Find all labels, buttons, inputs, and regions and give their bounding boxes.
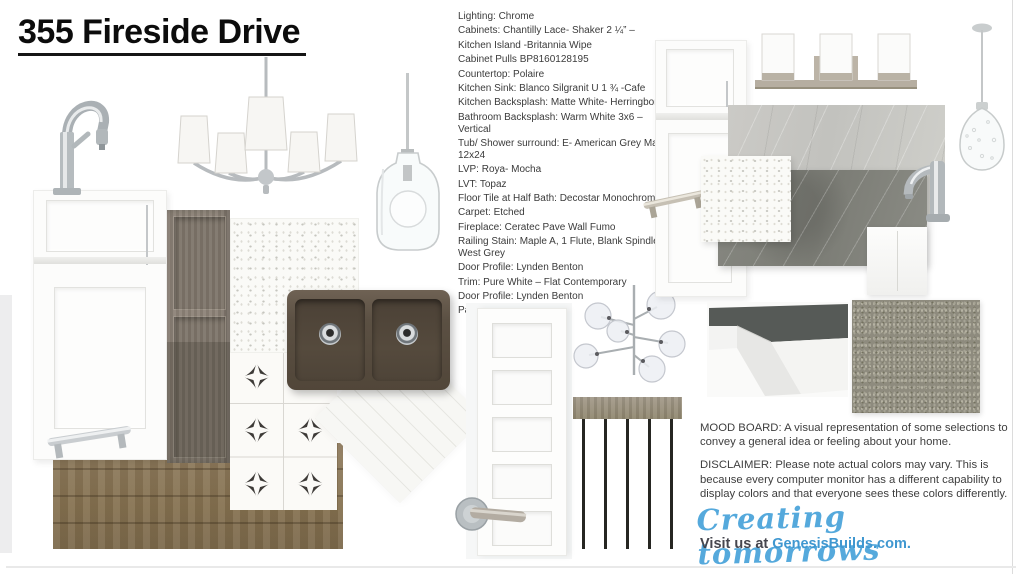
gray-wood-cabinet: [167, 210, 230, 463]
sink-drain: [396, 323, 418, 345]
upper-door-panel: [666, 49, 734, 107]
railing-spindle: [626, 419, 629, 549]
baseboard-trim-sample: [707, 302, 848, 397]
spec-line: Cabinets: Chantilly Lace- Shaker 2 ¼” –: [458, 25, 677, 37]
sink-bowl-left: [295, 299, 365, 381]
vanity-bar-light: [750, 26, 922, 96]
spec-line: Bathroom Backsplash: Warm White 3x6 – Ve…: [458, 112, 677, 136]
quartz-countertop-sample-right: [701, 156, 791, 242]
visit-prefix: Visit us at: [700, 536, 772, 552]
bathroom-faucet: [896, 153, 954, 225]
drawer-door-gap: [34, 257, 166, 264]
sputnik-chandelier: [573, 285, 698, 385]
railing-spindle: [582, 419, 585, 549]
door-shaker-panel: [54, 287, 146, 429]
spec-line: Tub/ Shower surround: E- American Grey M…: [458, 138, 677, 162]
spec-line: Cabinet Pulls BP8160128195: [458, 54, 677, 66]
cabinet-bar-pull: [44, 418, 136, 464]
spec-line: Door Profile: Lynden Benton: [458, 262, 677, 274]
vertical-white-tile-sample: [867, 227, 927, 295]
glass-jar-pendant: [368, 73, 448, 255]
sink-bowl-right: [372, 299, 442, 381]
mood-board-description: MOOD BOARD: A visual representation of s…: [700, 421, 1022, 449]
spec-line: Countertop: Polaire: [458, 69, 677, 81]
kitchen-sink-double-bowl: [287, 290, 450, 390]
bottom-page-edge: [6, 566, 1016, 568]
brand-tagline: Creating tomorrows: [696, 495, 1024, 572]
five-light-chandelier: [173, 55, 365, 205]
integrated-chrome-edge: [726, 81, 728, 107]
integrated-chrome-edge: [146, 205, 148, 265]
carpet-sample: [852, 300, 980, 413]
spec-list: Lighting: ChromeCabinets: Chantilly Lace…: [458, 11, 677, 320]
page-title: 355 Fireside Drive: [18, 13, 306, 56]
spec-line: Kitchen Sink: Blanco Silgranit U 1 ¾ -Ca…: [458, 83, 677, 95]
spec-line: Kitchen Island -Britannia Wipe: [458, 40, 677, 52]
railing-spindle: [648, 419, 651, 549]
spec-line: Railing Stain: Maple A, 1 Flute, Blank S…: [458, 236, 677, 260]
sink-drain: [319, 323, 341, 345]
door-lever-handle: [448, 492, 532, 540]
left-page-edge: [0, 295, 12, 553]
tile-seam: [897, 231, 898, 291]
drawer-front-panel: [46, 200, 154, 252]
door-panel: [492, 323, 552, 358]
door-panel: [492, 417, 552, 452]
spec-line: LVP: Roya- Mocha: [458, 164, 677, 176]
visit-line: Visit us at GenesisBuilds.com.: [700, 536, 911, 552]
disclaimer-text: DISCLAIMER: Please note actual colors ma…: [700, 458, 1022, 501]
railing-spindle: [604, 419, 607, 549]
seeded-glass-pendant: [952, 18, 1012, 173]
door-panel: [492, 370, 552, 405]
right-page-edge: [1012, 0, 1013, 574]
railing-spindle: [670, 419, 673, 549]
website-link[interactable]: GenesisBuilds.com.: [772, 536, 911, 552]
cabinet-bar-pull-right: [640, 184, 710, 224]
mood-board: 355 Fireside Drive Lighting: ChromeCabin…: [0, 0, 1024, 574]
spec-line: Kitchen Backsplash: Matte White- Herring…: [458, 97, 677, 109]
kitchen-faucet-image: [40, 84, 120, 196]
stair-railing-handrail: [573, 397, 682, 419]
spec-line: Lighting: Chrome: [458, 11, 677, 23]
cabinet-shadow: [167, 342, 230, 463]
